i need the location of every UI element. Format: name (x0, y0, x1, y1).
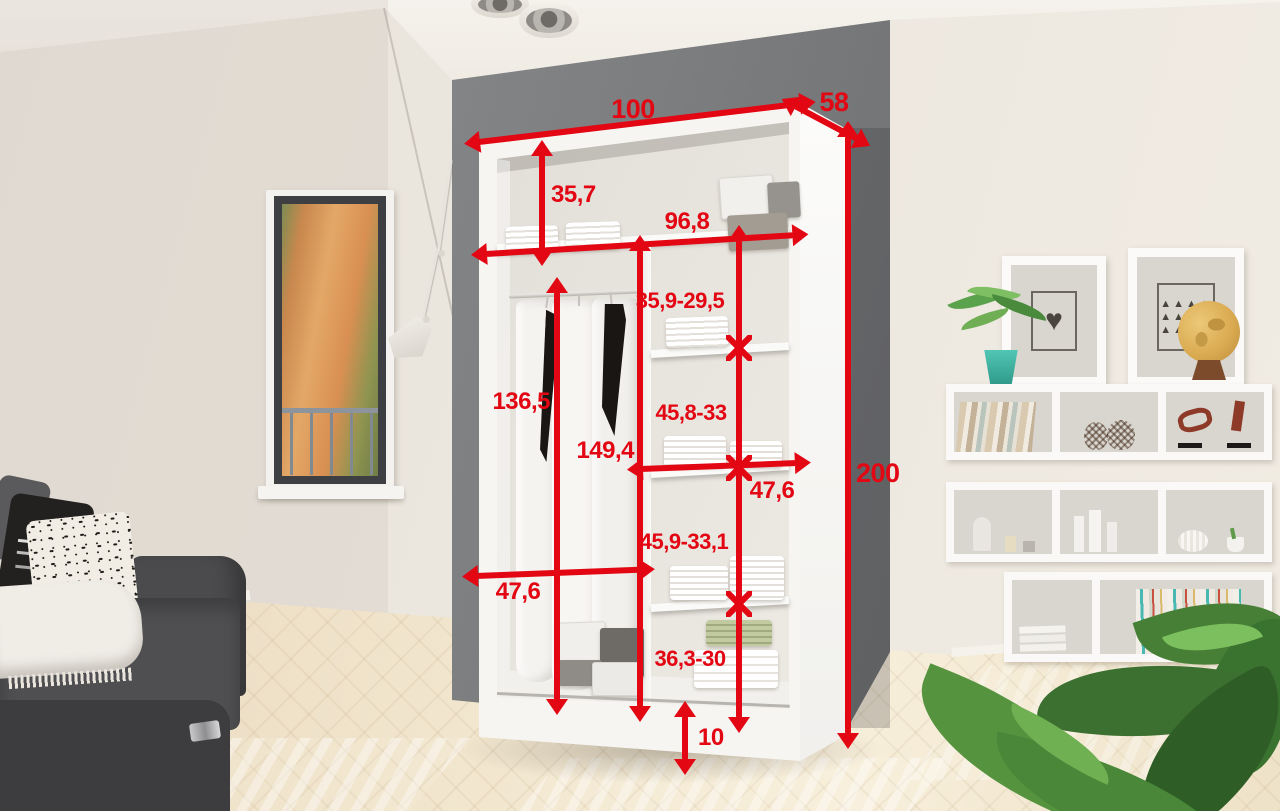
stacked-book (1020, 643, 1066, 652)
lamp-joint (438, 250, 445, 257)
candle (1005, 536, 1016, 552)
lamp-arm (420, 251, 439, 325)
dimension-cross-marker (726, 335, 752, 361)
shelf-cell-wall-art (1166, 392, 1264, 452)
pinecone (1107, 420, 1135, 450)
shelf-cell-pinecones (1060, 392, 1158, 452)
shelf-cell-vases (1060, 490, 1158, 554)
dim-label-total-height: 200 (856, 458, 926, 489)
dimension-line-total-height (845, 136, 851, 734)
dim-label-depth: 58 (810, 87, 858, 118)
vase-cylinder (1089, 510, 1101, 552)
heart-art: ♥ (1031, 291, 1077, 351)
wardrobe-cast-shadow (848, 128, 890, 728)
heart-icon: ♥ (1045, 304, 1063, 338)
globe (1178, 301, 1240, 363)
railing-baluster (330, 413, 333, 475)
ceiling-spotlight (519, 2, 579, 38)
vase-cylinder (1074, 516, 1084, 552)
paper-lantern-vase (1178, 530, 1208, 552)
dim-label-inner-width: 96,8 (645, 208, 729, 236)
railing-baluster (310, 413, 313, 475)
window (266, 190, 394, 496)
dimension-cross-marker (726, 591, 752, 617)
book-row (956, 402, 1037, 452)
railing-baluster (290, 413, 293, 475)
room-scene: ♥ ▲▲▲▲ ▲▲▲▲ ▲▲▲▲ (0, 0, 1280, 811)
dimension-line-top-compartment (539, 155, 545, 251)
dim-label-inner-height: 149,4 (552, 437, 634, 465)
candle (1023, 541, 1035, 552)
red-art-ring (1175, 405, 1214, 435)
wall-shelf-row-1 (946, 384, 1272, 460)
sofa-throw-blanket (0, 577, 145, 679)
wall-shelf-row-2 (946, 482, 1272, 562)
dimension-line-hanging-height (554, 292, 560, 700)
dimension-line-plinth (682, 716, 688, 760)
storage-box-white (592, 662, 642, 696)
lamp-arm (436, 160, 452, 254)
frame-mat: ♥ (1011, 265, 1097, 377)
candle-dome (972, 516, 992, 552)
sofa-base (0, 700, 230, 811)
window-frame (274, 196, 386, 484)
railing-baluster (370, 413, 373, 475)
towel-stack (665, 316, 728, 348)
dim-label-hanging-height: 136,5 (470, 388, 550, 416)
dim-label-right-compartment-1: 35,9-29,5 (622, 288, 738, 314)
dim-label-right-compartment-4: 36,3-30 (642, 646, 738, 672)
dim-label-top-compartment: 35,7 (551, 181, 621, 209)
shelf-cell-books (954, 392, 1052, 452)
dim-label-right-column-width: 47,6 (732, 477, 812, 505)
shelf-cell-ornaments (1166, 490, 1264, 554)
spotlight-bulb (526, 8, 572, 33)
dim-label-left-column-width: 47,6 (478, 578, 558, 606)
red-art-bar (1231, 400, 1245, 431)
art-base (1178, 443, 1202, 448)
dim-label-plinth: 10 (698, 724, 742, 752)
art-base (1227, 443, 1251, 448)
window-glass (282, 204, 378, 476)
towel-stack (670, 566, 728, 600)
vase-cylinder (1107, 522, 1117, 552)
window-sill (258, 486, 404, 499)
pinecone (1084, 422, 1108, 450)
hanger-hook (578, 294, 580, 306)
shelf-cell-book-stack (1012, 580, 1092, 654)
dim-label-right-compartment-2: 45,8-33 (643, 400, 739, 426)
spotlight-bulb (478, 0, 522, 13)
shelf-cell-candles (954, 490, 1052, 554)
picture-frame-heart: ♥ (1002, 256, 1106, 386)
mini-plant-pot (1227, 537, 1244, 552)
railing-baluster (350, 413, 353, 475)
dim-label-right-compartment-3: 45,9-33,1 (628, 529, 740, 555)
dim-label-outer-width: 100 (593, 94, 673, 125)
